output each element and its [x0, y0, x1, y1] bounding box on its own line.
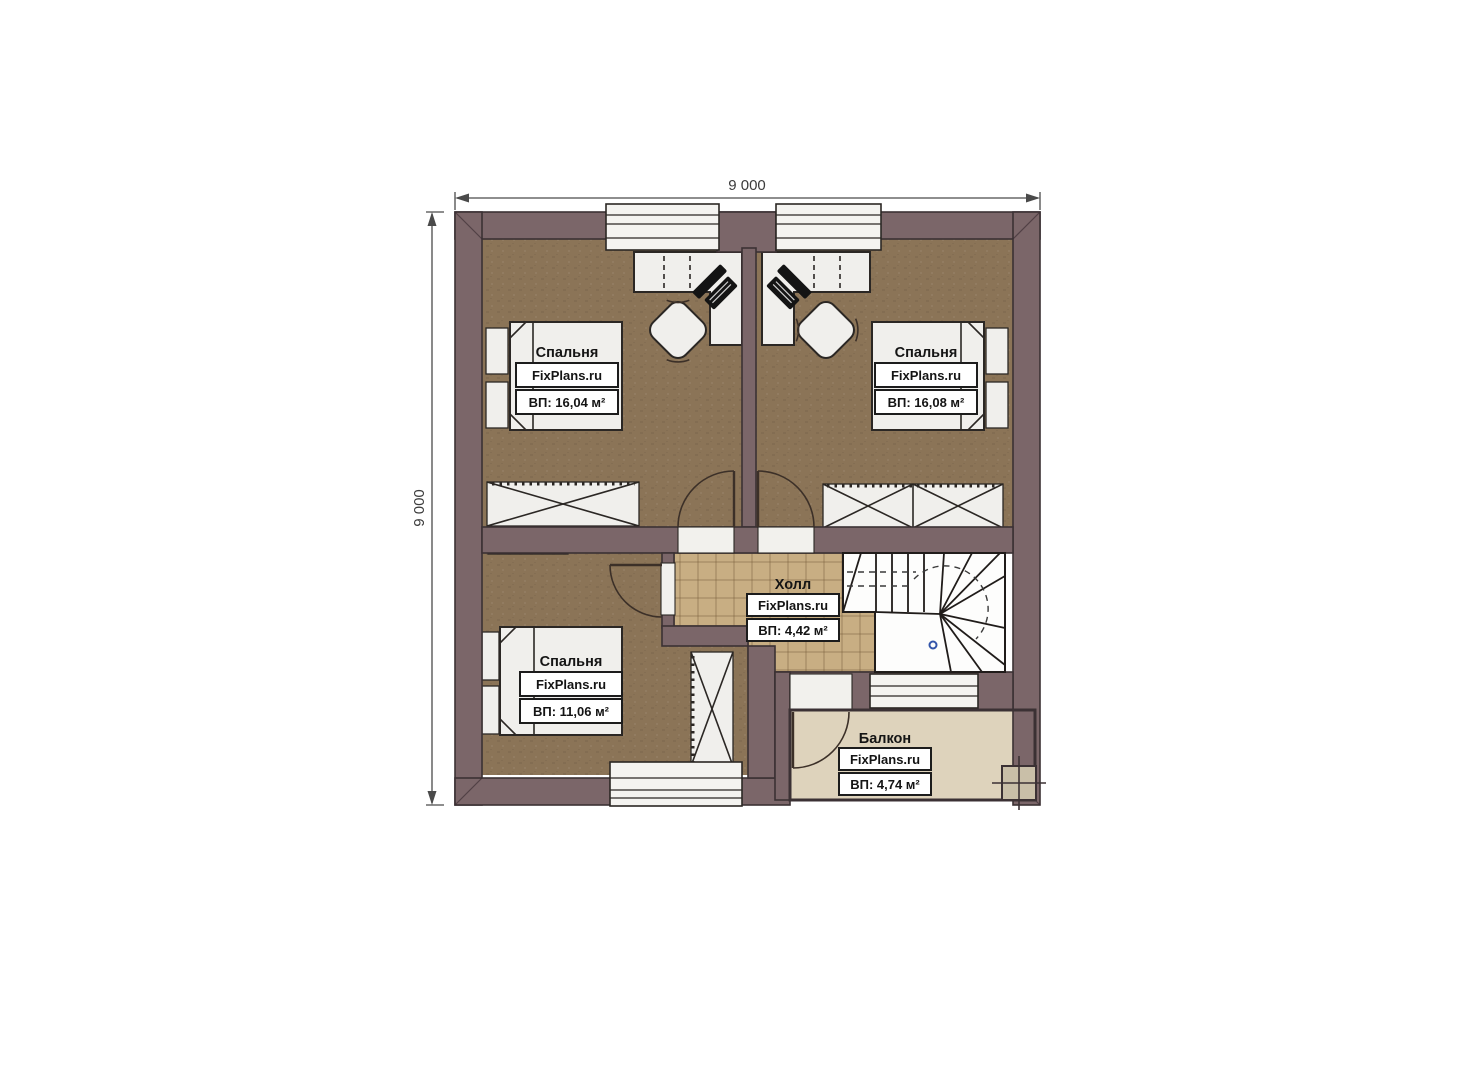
dimension-left: 9 000 — [411, 212, 444, 805]
dimension-top: 9 000 — [455, 177, 1040, 210]
window — [606, 204, 719, 250]
wall-nook-balcony — [748, 646, 775, 778]
brand-text: FixPlans.ru — [891, 368, 961, 383]
nightstand — [486, 328, 508, 374]
wall-balcony-left — [775, 672, 790, 800]
nightstand — [986, 328, 1008, 374]
window — [870, 674, 978, 708]
area-text: ВП: 16,08 м² — [888, 395, 965, 410]
room-title: Спальня — [540, 654, 603, 670]
window — [776, 204, 881, 250]
wall-left — [455, 212, 482, 805]
floor-plan-page: Спальня FixPlans.ru ВП: 16,04 м² Спальня… — [0, 0, 1473, 1080]
wall-mid-band — [482, 527, 1013, 553]
nightstand — [482, 686, 499, 734]
brand-text: FixPlans.ru — [536, 677, 606, 692]
nightstand — [482, 632, 499, 680]
wall-center — [742, 248, 756, 527]
dimension-left-value: 9 000 — [411, 489, 428, 527]
brand-text: FixPlans.ru — [758, 598, 828, 613]
brand-text: FixPlans.ru — [850, 752, 920, 767]
wall-window-pier — [717, 212, 776, 252]
area-text: ВП: 4,42 м² — [758, 623, 828, 638]
room-title: Спальня — [895, 345, 958, 361]
area-text: ВП: 11,06 м² — [533, 704, 610, 719]
nightstand — [986, 382, 1008, 428]
room-title: Холл — [775, 577, 811, 593]
window — [610, 762, 742, 806]
area-text: ВП: 4,74 м² — [850, 777, 920, 792]
wall-hall-nook — [662, 626, 748, 646]
floor-plan-svg: Спальня FixPlans.ru ВП: 16,04 м² Спальня… — [0, 0, 1473, 1080]
dimension-top-value: 9 000 — [728, 177, 766, 194]
room-title: Балкон — [859, 731, 911, 747]
area-text: ВП: 16,04 м² — [529, 395, 606, 410]
brand-text: FixPlans.ru — [532, 368, 602, 383]
nightstand — [486, 382, 508, 428]
room-title: Спальня — [536, 345, 599, 361]
